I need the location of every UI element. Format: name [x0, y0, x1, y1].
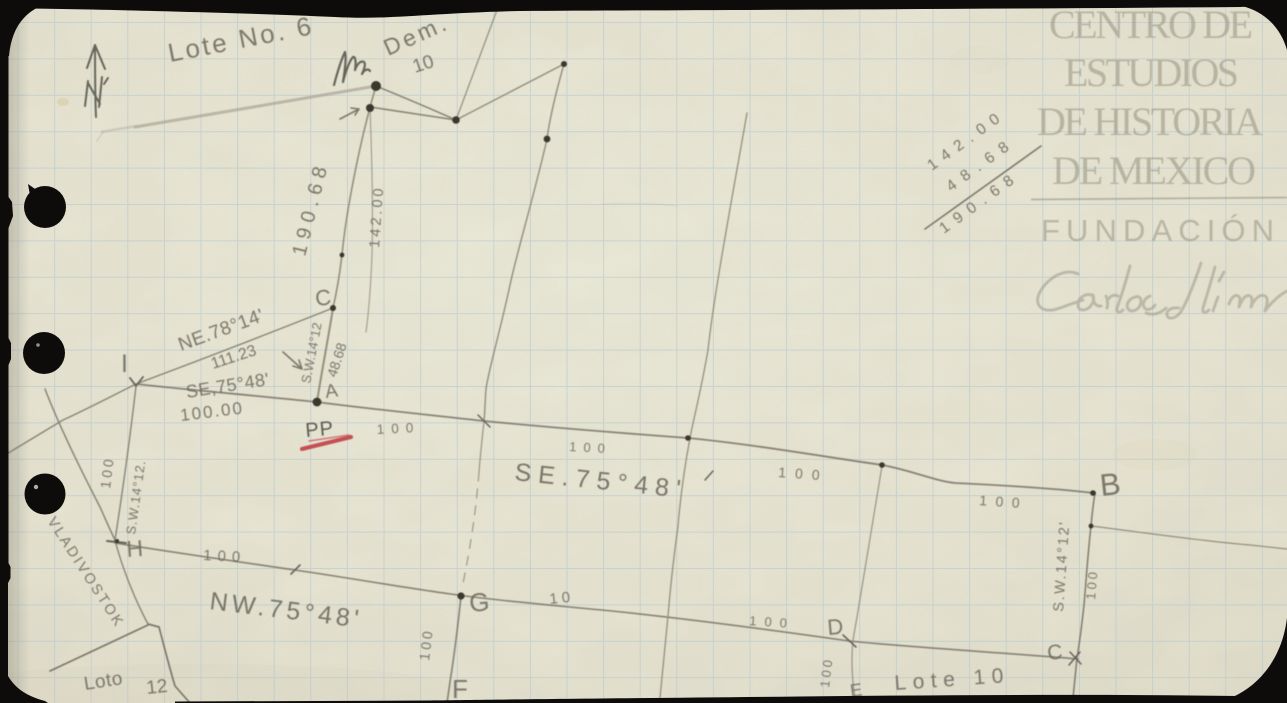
svg-text:10: 10 [549, 588, 575, 607]
svg-text:DE HISTORIA: DE HISTORIA [1037, 99, 1263, 144]
svg-text:100: 100 [203, 547, 247, 566]
svg-text:100: 100 [1083, 568, 1101, 600]
svg-text:C: C [314, 284, 333, 311]
svg-text:D: D [826, 614, 844, 640]
svg-text:12: 12 [145, 676, 168, 699]
svg-text:FUNDACIÓN: FUNDACIÓN [1041, 213, 1274, 248]
svg-text:F: F [452, 674, 468, 703]
svg-text:G: G [468, 586, 491, 618]
svg-text:100: 100 [749, 613, 796, 631]
svg-text:I: I [121, 350, 128, 378]
svg-text:100: 100 [979, 492, 1029, 511]
svg-text:CENTRO DE: CENTRO DE [1049, 2, 1253, 47]
svg-text:C: C [1046, 641, 1063, 665]
svg-text:ESTUDIOS: ESTUDIOS [1064, 50, 1239, 95]
svg-text:100: 100 [376, 420, 420, 437]
svg-text:DE MEXICO: DE MEXICO [1052, 148, 1256, 193]
svg-text:B: B [1098, 466, 1122, 503]
svg-text:PP: PP [305, 418, 335, 442]
svg-text:100: 100 [569, 439, 612, 456]
svg-text:H: H [126, 535, 144, 562]
